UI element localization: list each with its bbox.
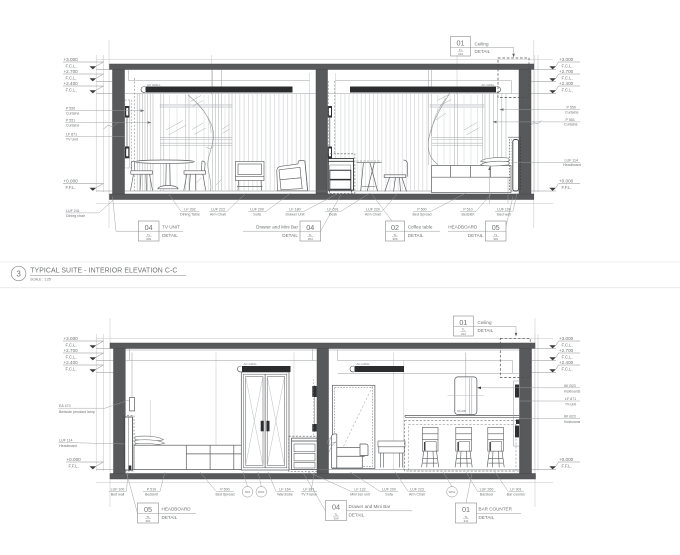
svg-text:BAR COUNTER: BAR COUNTER xyxy=(479,507,513,512)
svg-text:+2.400: +2.400 xyxy=(559,360,574,365)
svg-text:AC GRILL: AC GRILL xyxy=(481,83,495,87)
svg-text:+0.000: +0.000 xyxy=(559,179,574,184)
svg-text:F.C.L.: F.C.L. xyxy=(562,87,573,92)
svg-text:312: 312 xyxy=(461,332,466,336)
svg-text:Wardrobe: Wardrobe xyxy=(277,492,293,496)
svg-text:Headboard: Headboard xyxy=(59,444,77,448)
svg-text:DETAIL: DETAIL xyxy=(162,233,178,238)
svg-text:LUF 241: LUF 241 xyxy=(66,209,80,213)
svg-text:P 551: P 551 xyxy=(66,119,75,123)
svg-text:306: 306 xyxy=(392,237,397,241)
svg-text:+2.700: +2.700 xyxy=(64,348,79,353)
svg-text:+3.000: +3.000 xyxy=(64,336,79,341)
svg-text:Drawer and Mini Bar: Drawer and Mini Bar xyxy=(256,225,298,230)
svg-text:3: 3 xyxy=(16,269,21,278)
svg-text:Bed Spread: Bed Spread xyxy=(413,212,432,216)
svg-text:+2.700: +2.700 xyxy=(559,348,574,353)
svg-text:LUF 100: LUF 100 xyxy=(497,207,511,211)
svg-text:Drawer and Mini Bar: Drawer and Mini Bar xyxy=(349,504,391,509)
svg-text:312: 312 xyxy=(458,52,463,56)
svg-text:DETAIL: DETAIL xyxy=(475,49,491,54)
svg-text:F.C.L.: F.C.L. xyxy=(66,75,77,80)
svg-text:SCALE : 1:25: SCALE : 1:25 xyxy=(30,277,51,281)
svg-text:Bed Spread: Bed Spread xyxy=(216,492,235,496)
svg-text:Sofa: Sofa xyxy=(385,492,392,496)
svg-text:F.C.L.: F.C.L. xyxy=(562,366,573,371)
svg-text:Ceiling: Ceiling xyxy=(475,42,489,47)
svg-text:Barstool: Barstool xyxy=(480,492,493,496)
svg-text:WOL: WOL xyxy=(449,490,456,494)
svg-text:DETAIL: DETAIL xyxy=(478,328,494,333)
svg-text:P 551: P 551 xyxy=(566,118,575,122)
svg-text:Curtains: Curtains xyxy=(564,123,578,127)
svg-text:Curtains: Curtains xyxy=(66,123,80,127)
svg-text:P 510: P 510 xyxy=(147,487,156,491)
svg-text:Bedskirt: Bedskirt xyxy=(145,492,158,496)
svg-text:WOL: WOL xyxy=(258,490,265,494)
svg-text:01: 01 xyxy=(459,318,467,327)
svg-text:LUF 223: LUF 223 xyxy=(211,207,225,211)
svg-text:Arm Chair: Arm Chair xyxy=(409,492,426,496)
svg-text:AC GRILL: AC GRILL xyxy=(147,83,161,87)
svg-text:DETAIL: DETAIL xyxy=(408,233,424,238)
svg-text:DETAIL: DETAIL xyxy=(479,515,495,520)
svg-text:6K B23: 6K B23 xyxy=(564,415,576,419)
svg-text:303: 303 xyxy=(146,237,151,241)
svg-text:DETAIL: DETAIL xyxy=(349,512,365,517)
svg-text:P 510: P 510 xyxy=(463,207,472,211)
svg-text:+2.400: +2.400 xyxy=(64,360,79,365)
svg-text:02: 02 xyxy=(391,223,399,232)
svg-text:F.C.L.: F.C.L. xyxy=(66,354,77,359)
svg-text:LF 180: LF 180 xyxy=(289,207,300,211)
svg-text:Curtains: Curtains xyxy=(565,111,579,115)
svg-text:LUF 220: LUF 220 xyxy=(366,207,380,211)
svg-text:Bed wall: Bed wall xyxy=(111,492,125,496)
svg-text:LF 871: LF 871 xyxy=(565,397,576,401)
svg-text:+3.000: +3.000 xyxy=(559,336,574,341)
svg-text:TV UNIT: TV UNIT xyxy=(162,225,180,230)
svg-text:05: 05 xyxy=(492,223,500,232)
svg-text:6K B23: 6K B23 xyxy=(564,384,576,388)
svg-text:F.F.L.: F.F.L. xyxy=(562,463,572,468)
svg-text:F.C.L.: F.C.L. xyxy=(562,75,573,80)
svg-text:F.C.L.: F.C.L. xyxy=(66,342,77,347)
svg-text:TYPICAL SUITE - INTERIOR ELEVA: TYPICAL SUITE - INTERIOR ELEVATION C-C xyxy=(30,268,177,275)
svg-text:Curtains: Curtains xyxy=(66,112,80,116)
svg-text:Arm Chair: Arm Chair xyxy=(365,212,382,216)
svg-text:311: 311 xyxy=(464,519,469,523)
svg-text:Dining Table: Dining Table xyxy=(180,212,200,216)
svg-text:HEADBOARD: HEADBOARD xyxy=(162,507,192,512)
svg-text:+0.000: +0.000 xyxy=(67,457,82,462)
svg-text:F.C.L.: F.C.L. xyxy=(562,354,573,359)
svg-text:DETAIL: DETAIL xyxy=(468,233,484,238)
svg-text:Headboard: Headboard xyxy=(563,163,581,167)
svg-text:P 500: P 500 xyxy=(220,487,229,491)
svg-text:P 500: P 500 xyxy=(417,207,426,211)
svg-text:+2.400: +2.400 xyxy=(64,81,79,86)
svg-text:LUF 100: LUF 100 xyxy=(111,487,125,491)
svg-text:AC GRILL: AC GRILL xyxy=(357,362,371,366)
svg-text:LUF 200: LUF 200 xyxy=(382,487,396,491)
svg-text:04: 04 xyxy=(332,503,340,512)
svg-text:Ceiling: Ceiling xyxy=(478,320,492,325)
svg-text:504: 504 xyxy=(245,490,250,494)
svg-text:TV-Unit: TV-Unit xyxy=(565,403,576,407)
svg-text:LF 392: LF 392 xyxy=(184,207,195,211)
svg-text:Mini bar unit: Mini bar unit xyxy=(350,492,370,496)
svg-text:+0.000: +0.000 xyxy=(64,179,79,184)
svg-text:LF 164: LF 164 xyxy=(279,487,290,491)
svg-text:LF 871: LF 871 xyxy=(66,133,77,137)
svg-text:Dining chair: Dining chair xyxy=(66,214,86,218)
svg-text:LF 591: LF 591 xyxy=(327,207,338,211)
svg-text:+3.000: +3.000 xyxy=(559,57,574,62)
svg-text:+2.700: +2.700 xyxy=(559,69,574,74)
svg-text:WH-RB: WH-RB xyxy=(457,409,466,413)
svg-text:+2.700: +2.700 xyxy=(64,69,79,74)
svg-text:01: 01 xyxy=(457,39,465,48)
svg-text:TV Unit: TV Unit xyxy=(66,137,78,141)
svg-text:Arm Chair: Arm Chair xyxy=(210,212,227,216)
svg-text:P 550: P 550 xyxy=(567,106,576,110)
svg-text:+3.000: +3.000 xyxy=(64,57,79,62)
svg-text:Kickboards: Kickboards xyxy=(564,420,581,424)
svg-text:304: 304 xyxy=(308,237,313,241)
svg-text:F.C.L.: F.C.L. xyxy=(66,366,77,371)
svg-text:+0.000: +0.000 xyxy=(559,457,574,462)
svg-text:01: 01 xyxy=(462,505,470,514)
svg-text:LF 132: LF 132 xyxy=(354,487,365,491)
svg-text:Bedside pendant lamp: Bedside pendant lamp xyxy=(59,410,95,414)
svg-text:F.C.L.: F.C.L. xyxy=(562,342,573,347)
svg-text:TV Frame: TV Frame xyxy=(301,492,317,496)
svg-text:F.F.L.: F.F.L. xyxy=(69,463,79,468)
svg-text:HEADBOARD: HEADBOARD xyxy=(448,225,478,230)
svg-text:F.F.L.: F.F.L. xyxy=(66,185,76,190)
svg-text:P 550: P 550 xyxy=(66,107,75,111)
svg-text:Bedskirt: Bedskirt xyxy=(462,212,475,216)
svg-text:04: 04 xyxy=(145,223,153,232)
svg-text:LUF 200: LUF 200 xyxy=(250,207,264,211)
svg-text:F.F.L.: F.F.L. xyxy=(562,185,572,190)
svg-text:LUF 114: LUF 114 xyxy=(565,158,579,162)
svg-text:Bar counter: Bar counter xyxy=(507,492,526,496)
svg-text:F.C.L.: F.C.L. xyxy=(562,63,573,68)
svg-text:F.C.L.: F.C.L. xyxy=(66,87,77,92)
svg-text:F.C.L.: F.C.L. xyxy=(66,63,77,68)
svg-text:04: 04 xyxy=(306,223,314,232)
svg-text:LUF 223: LUF 223 xyxy=(410,487,424,491)
svg-text:301: 301 xyxy=(493,237,498,241)
svg-text:304: 304 xyxy=(333,517,338,521)
svg-text:DETAIL: DETAIL xyxy=(282,233,298,238)
svg-text:301: 301 xyxy=(145,519,150,523)
svg-text:EA 473: EA 473 xyxy=(59,404,71,408)
svg-text:DETAIL: DETAIL xyxy=(162,515,178,520)
svg-text:LUF 114: LUF 114 xyxy=(59,438,73,442)
svg-text:Kickboards: Kickboards xyxy=(564,389,581,393)
svg-text:Drawer Unit: Drawer Unit xyxy=(286,212,305,216)
svg-text:AC GRILL: AC GRILL xyxy=(244,362,258,366)
svg-text:Sofa: Sofa xyxy=(253,212,260,216)
svg-text:LF 901: LF 901 xyxy=(510,487,521,491)
svg-text:+2.400: +2.400 xyxy=(559,81,574,86)
svg-text:05: 05 xyxy=(144,505,152,514)
svg-text:Coffee table: Coffee table xyxy=(408,225,433,230)
svg-text:LUF 260: LUF 260 xyxy=(480,487,494,491)
